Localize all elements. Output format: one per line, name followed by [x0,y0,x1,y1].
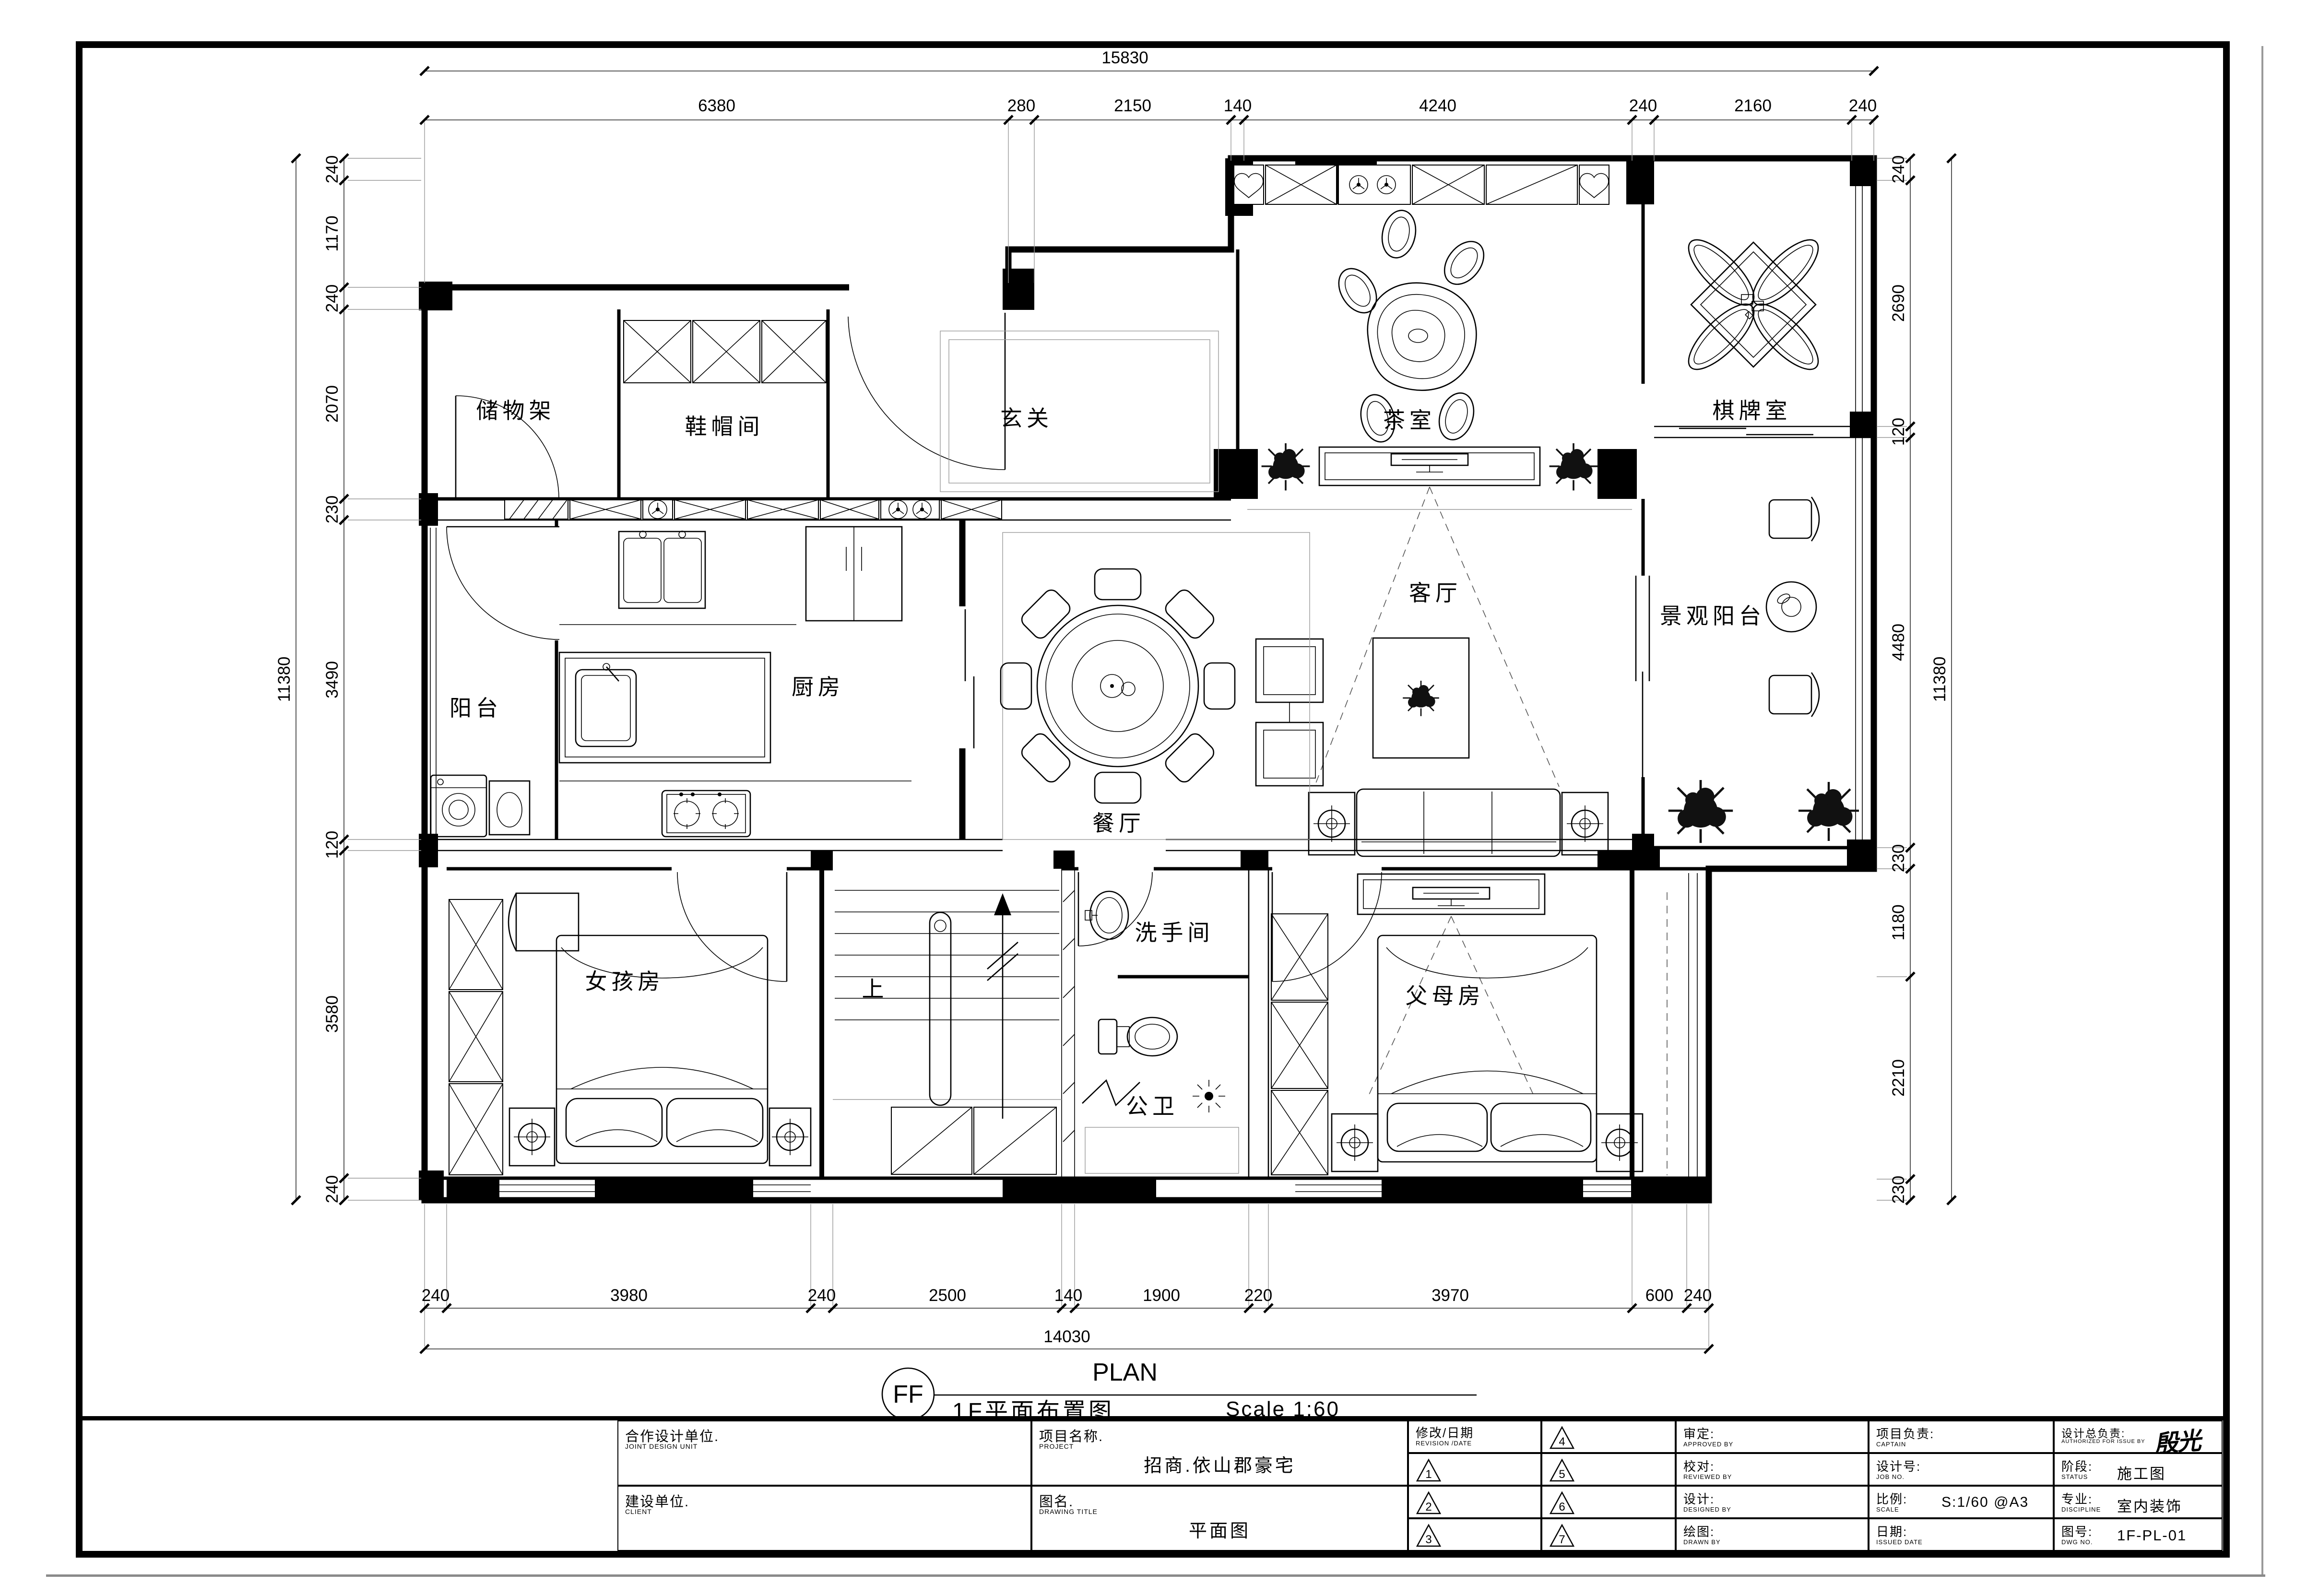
girl-wardrobe [449,899,503,1175]
room-label-girl: 女孩房 [585,969,664,994]
svg-text:4: 4 [1559,1435,1565,1448]
parents-room-furniture [1332,874,1643,1171]
svg-text:120: 120 [323,831,342,859]
structural-columns [419,158,1874,1200]
tb-revision-3: 3 [1408,1518,1541,1551]
svg-text:1180: 1180 [1889,904,1908,940]
chess-room-furniture [1679,230,1827,378]
room-label-parents: 父母房 [1406,983,1485,1008]
tb-discipline: 专业: DISCIPLINE 室内装饰 [2054,1486,2223,1518]
svg-text:1900: 1900 [1143,1286,1180,1305]
tb-revision-2: 2 [1408,1486,1541,1518]
svg-text:230: 230 [1889,844,1908,872]
titleblock-divider [83,1416,2223,1420]
svg-text:240: 240 [323,155,342,183]
stairs-up-label: 上 [862,977,888,1002]
tb-revision-7: 7 [1541,1518,1676,1551]
plan-title: FF 1F平面布置图 PLAN Scale 1:60 [882,1359,1477,1424]
room-label-chess: 棋牌室 [1713,398,1792,423]
understair-storage [891,1107,1056,1174]
svg-text:3: 3 [1425,1533,1432,1546]
svg-text:120: 120 [1889,418,1908,446]
svg-text:4240: 4240 [1419,96,1456,115]
svg-text:230: 230 [1889,1176,1908,1204]
room-label-tea: 茶室 [1383,408,1436,433]
svg-text:1: 1 [1425,1468,1432,1481]
svg-text:600: 600 [1645,1286,1673,1305]
svg-text:7: 7 [1559,1533,1565,1546]
svg-text:3980: 3980 [610,1286,648,1305]
tb-status-value: 施工图 [2117,1462,2166,1483]
tb-date: 日期: ISSUED DATE [1869,1518,2054,1551]
revision-triangle-icon: 1 [1416,1458,1442,1483]
room-label-washroom: 洗手间 [1135,920,1214,945]
room-label-bath: 公卫 [1126,1094,1179,1119]
svg-text:240: 240 [323,1175,342,1203]
interior-walls [425,163,1874,1197]
svg-text:240: 240 [1629,96,1657,115]
tb-revision-1: 1 [1408,1453,1541,1486]
room-label-storage: 储物架 [476,398,556,423]
revision-triangle-icon: 4 [1549,1425,1575,1450]
tb-joint-design-unit: 合作设计单位. JOINT DESIGN UNIT [617,1420,1031,1486]
living-room-furniture [1256,443,1608,856]
svg-text:1170: 1170 [323,215,342,251]
parents-wardrobe [1271,914,1328,1175]
tb-revision-4: 4 [1541,1420,1676,1453]
svg-text:2500: 2500 [929,1286,966,1305]
tb-designed: 设计: DESIGNED BY [1676,1486,1869,1518]
tb-discipline-value: 室内装饰 [2117,1494,2182,1516]
dim-left-total: 11380 [275,657,294,702]
tb-project-value: 招商.依山郡豪宅 [1032,1451,1407,1477]
svg-text:2690: 2690 [1889,284,1908,322]
svg-text:280: 280 [1007,96,1035,115]
room-label-cloak: 鞋帽间 [685,414,764,439]
dim-right-total: 11380 [1930,657,1949,702]
revision-triangle-icon: 7 [1549,1523,1575,1548]
tb-reviewed: 校对: REVIEWED BY [1676,1453,1869,1486]
girl-room-door [677,872,787,981]
svg-text:3580: 3580 [323,995,342,1033]
room-label-dining: 餐厅 [1092,811,1145,836]
dim-top-total: 15830 [1101,48,1148,67]
tb-client: 建设单位. CLIENT [617,1486,1031,1551]
floor-plan-drawing: 储物架 鞋帽间 玄关 茶室 棋牌室 阳台 厨房 餐厅 客厅 景观阳台 女孩房 上… [0,0,2319,1596]
drawing-sheet: 储物架 鞋帽间 玄关 茶室 棋牌室 阳台 厨房 餐厅 客厅 景观阳台 女孩房 上… [0,0,2319,1596]
svg-text:240: 240 [1684,1286,1712,1305]
tb-authorized: 设计总负责: AUTHORIZED FOR ISSUE BY 殷光林 [2054,1420,2223,1453]
tb-job-no: 设计号: JOB NO. [1869,1453,2054,1486]
svg-text:230: 230 [323,496,342,523]
svg-text:220: 220 [1244,1286,1272,1305]
svg-text:5: 5 [1559,1468,1565,1481]
room-label-foyer: 玄关 [1000,406,1053,431]
dim-bottom-total: 14030 [1043,1327,1090,1346]
svg-text:140: 140 [1054,1286,1082,1305]
revision-triangle-icon: 6 [1549,1490,1575,1515]
svg-text:6: 6 [1559,1501,1565,1513]
room-label-view-balcony: 景观阳台 [1660,603,1765,628]
tb-captain: 项目负责: CAPTAIN [1869,1420,2054,1453]
revision-triangle-icon: 3 [1416,1523,1442,1548]
tb-project: 项目名称. PROJECT 招商.依山郡豪宅 [1031,1420,1408,1486]
plan-ref-bubble: FF [893,1381,923,1408]
svg-text:3970: 3970 [1432,1286,1469,1305]
tb-dwg-no-value: 1F-PL-01 [2117,1527,2187,1544]
girl-room-furniture [509,893,811,1166]
plan-title-en: PLAN [1092,1359,1158,1386]
svg-text:3490: 3490 [323,661,342,698]
tb-drawing-title: 图名. DRAWING TITLE 平面图 [1031,1486,1408,1551]
room-label-balcony: 阳台 [450,696,502,721]
tb-drawn: 绘图: DRAWN BY [1676,1518,1869,1551]
stairs [833,890,1062,1119]
entry-door [848,313,1005,470]
room-label-living: 客厅 [1409,580,1462,605]
svg-text:2150: 2150 [1114,96,1151,115]
svg-text:2070: 2070 [323,385,342,423]
tb-approved: 审定: APPROVED BY [1676,1420,1869,1453]
tb-dwg-no: 图号: DWG NO. 1F-PL-01 [2054,1518,2223,1551]
svg-text:240: 240 [808,1286,836,1305]
svg-text:2: 2 [1425,1501,1432,1513]
tb-revision-5: 5 [1541,1453,1676,1486]
cloak-cabinets [624,320,826,383]
svg-text:2160: 2160 [1734,96,1772,115]
svg-text:240: 240 [323,284,342,312]
svg-text:4480: 4480 [1889,624,1908,661]
room-label-kitchen: 厨房 [792,674,844,699]
svg-text:240: 240 [1889,155,1908,183]
kitchen-furniture [559,527,911,837]
view-balcony-furniture [1668,497,1859,843]
balcony-door [447,527,559,639]
svg-text:240: 240 [422,1286,450,1305]
svg-text:2210: 2210 [1889,1059,1908,1097]
kitchen-wall-cabinets [505,500,1002,519]
revision-triangle-icon: 5 [1549,1458,1575,1483]
service-balcony-fixtures [431,775,530,837]
svg-text:6380: 6380 [698,96,735,115]
svg-text:240: 240 [1849,96,1877,115]
tb-revision-6: 6 [1541,1486,1676,1518]
tb-drawing-title-value: 平面图 [1032,1516,1407,1542]
hall-top-cabinets [1234,165,1609,204]
revision-triangle-icon: 2 [1416,1490,1442,1515]
tb-status: 阶段: STATUS 施工图 [2054,1453,2223,1486]
tb-revision-header: 修改/日期 REVISION /DATE [1408,1420,1541,1453]
tb-scale-value: S:1/60 @A3 [1941,1494,2029,1511]
svg-text:140: 140 [1224,96,1252,115]
tb-scale: 比例: SCALE S:1/60 @A3 [1869,1486,2054,1518]
exterior-walls [425,158,1874,1200]
